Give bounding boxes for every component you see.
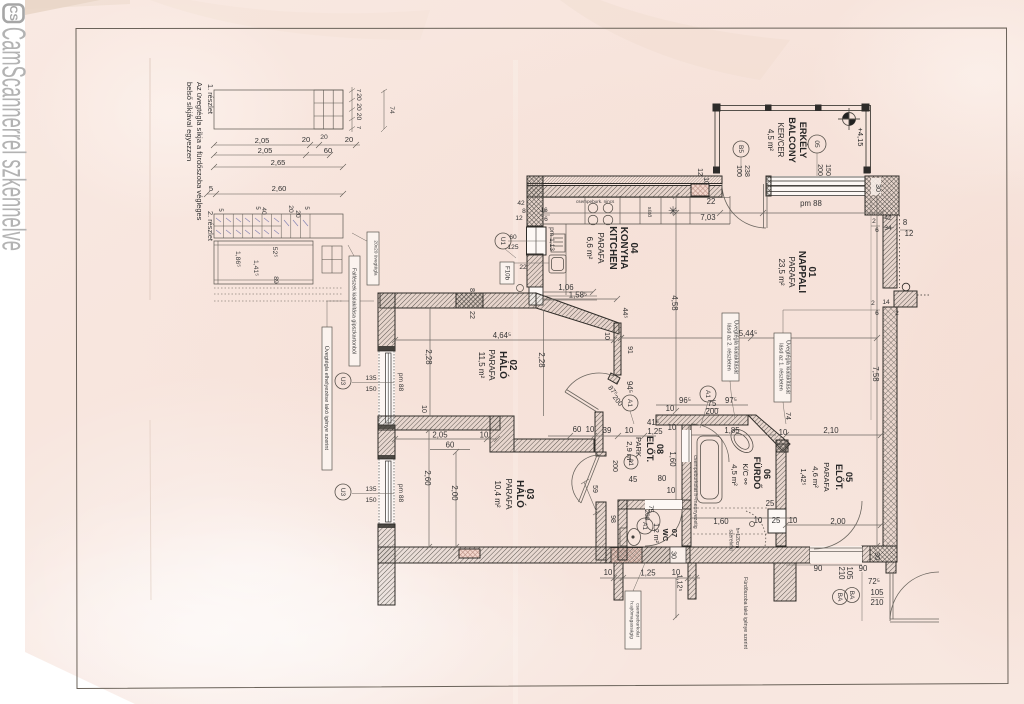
svg-text:200: 200 [816, 164, 823, 176]
svg-text:90: 90 [859, 564, 868, 573]
svg-text:90: 90 [814, 564, 823, 573]
svg-text:8: 8 [522, 208, 526, 215]
svg-text:lásd az 2. részleten: lásd az 2. részleten [726, 323, 732, 370]
svg-text:60: 60 [324, 146, 332, 155]
svg-text:2: 2 [872, 218, 876, 225]
svg-text:lásd az 1. részleten: lásd az 1. részleten [778, 343, 784, 390]
svg-text:12: 12 [696, 168, 703, 176]
svg-text:1,85: 1,85 [724, 426, 740, 435]
svg-text:80: 80 [658, 474, 667, 483]
svg-text:ELŐT.: ELŐT. [645, 436, 656, 462]
svg-text:PARAFA: PARAFA [487, 350, 496, 382]
svg-text:10: 10 [625, 426, 634, 435]
svg-text:✳: ✳ [668, 204, 678, 218]
svg-text:10: 10 [668, 423, 677, 432]
svg-text:7: 7 [355, 89, 361, 92]
svg-text:210: 210 [870, 598, 884, 607]
svg-text:150: 150 [824, 164, 831, 176]
svg-text:U3: U3 [339, 488, 346, 497]
svg-text:KITCHEN: KITCHEN [607, 226, 618, 270]
svg-text:PARAFA: PARAFA [504, 479, 513, 511]
svg-text:belső síkjával egyezzen: belső síkjával egyezzen [185, 82, 194, 161]
svg-text:05: 05 [813, 140, 820, 148]
svg-text:U3: U3 [339, 377, 346, 386]
svg-text:Fürdőszoba lakó igénye szerint: Fürdőszoba lakó igénye szerint [742, 577, 748, 649]
svg-text:pm 88: pm 88 [397, 373, 404, 392]
svg-text:6: 6 [875, 227, 879, 234]
svg-text:10: 10 [667, 486, 676, 495]
svg-text:20: 20 [287, 205, 294, 213]
svg-text:20: 20 [320, 134, 328, 141]
svg-text:22: 22 [519, 264, 527, 271]
svg-text:97⁵: 97⁵ [725, 396, 737, 405]
svg-text:HÁLÓ: HÁLÓ [514, 480, 526, 508]
svg-text:F10b: F10b [504, 266, 511, 281]
svg-text:6: 6 [875, 310, 879, 317]
svg-text:7,58: 7,58 [871, 366, 880, 381]
svg-text:2,65: 2,65 [271, 158, 286, 167]
svg-text:BA: BA [836, 593, 843, 602]
svg-text:30: 30 [873, 552, 880, 560]
svg-text:2,05: 2,05 [255, 136, 270, 145]
svg-text:2,60: 2,60 [423, 470, 432, 486]
svg-text:20: 20 [355, 93, 362, 101]
svg-text:A1: A1 [626, 399, 633, 407]
svg-text:PARAFA: PARAFA [787, 257, 796, 289]
svg-text:h:ajtómagasságig: h:ajtómagasságig [629, 601, 635, 639]
svg-text:Falfészek kialakítása gipszkar: Falfészek kialakítása gipszkartonból [351, 268, 357, 354]
svg-text:2: 2 [895, 310, 899, 317]
svg-text:10: 10 [702, 177, 709, 185]
svg-text:KER/CER: KER/CER [776, 123, 785, 158]
svg-text:42: 42 [884, 215, 892, 222]
svg-text:135: 135 [365, 486, 376, 493]
svg-text:10: 10 [666, 404, 675, 413]
svg-text:1,2 m²: 1,2 m² [652, 523, 659, 544]
svg-text:210: 210 [837, 566, 846, 580]
svg-text:Üvegtégla elhelyezése lakó igé: Üvegtégla elhelyezése lakó igénye szerin… [323, 346, 330, 451]
svg-text:szerelvfal: szerelvfal [728, 529, 734, 550]
svg-text:KONYHA: KONYHA [618, 227, 629, 269]
svg-text:12: 12 [905, 229, 914, 238]
svg-text:Üvegtégla kialakítását: Üvegtégla kialakítását [733, 320, 740, 374]
svg-text:60: 60 [446, 441, 455, 450]
svg-text:60: 60 [573, 425, 582, 434]
svg-text:20: 20 [345, 135, 353, 144]
svg-text:98: 98 [609, 515, 616, 523]
svg-text:PARAFA: PARAFA [822, 462, 831, 492]
svg-text:105: 105 [870, 588, 884, 597]
svg-text:4,5 m²: 4,5 m² [766, 129, 775, 151]
svg-text:A1: A1 [641, 522, 648, 530]
svg-text:30: 30 [670, 551, 677, 559]
svg-text:csempeburkolat h=mennyezetig: csempeburkolat h=mennyezetig [692, 455, 698, 529]
svg-text:2. részlet: 2. részlet [206, 211, 215, 241]
svg-text:5: 5 [209, 184, 213, 193]
svg-text:41⁵: 41⁵ [647, 418, 659, 427]
svg-text:135: 135 [365, 375, 376, 382]
svg-text:FÜRDŐ: FÜRDŐ [752, 457, 763, 490]
svg-text:52⁵: 52⁵ [271, 247, 278, 258]
svg-text:30: 30 [874, 184, 881, 192]
svg-text:1,12⁵: 1,12⁵ [676, 575, 685, 592]
svg-text:06: 06 [762, 469, 772, 479]
svg-text:7: 7 [355, 126, 361, 129]
svg-text:2,28: 2,28 [424, 349, 433, 364]
svg-text:Üvegtégla kialakítását: Üvegtégla kialakítását [785, 340, 792, 394]
svg-text:2,28: 2,28 [537, 352, 546, 367]
svg-text:91: 91 [626, 346, 633, 354]
svg-text:B5: B5 [737, 145, 744, 153]
svg-text:pm 88: pm 88 [397, 484, 404, 503]
svg-text:59: 59 [591, 485, 598, 493]
svg-text:05: 05 [844, 472, 854, 482]
svg-text:A1: A1 [704, 390, 711, 398]
svg-text:7,03: 7,03 [700, 213, 715, 222]
svg-text:25: 25 [772, 516, 781, 525]
svg-text:2,05: 2,05 [258, 146, 273, 155]
svg-text:14: 14 [882, 299, 890, 306]
svg-text:1,25: 1,25 [640, 569, 656, 578]
svg-text:CamScannerrel szkennelve: CamScannerrel szkennelve [0, 27, 33, 251]
svg-text:10,4 m²: 10,4 m² [493, 480, 502, 507]
svg-text:44⁵: 44⁵ [621, 308, 628, 319]
svg-text:1,86⁵: 1,86⁵ [234, 251, 241, 267]
svg-text:U1: U1 [499, 237, 506, 246]
svg-text:pm 1,13: pm 1,13 [548, 227, 555, 251]
svg-text:csempeburkolat: csempeburkolat [635, 603, 641, 638]
svg-text:6,6 m²: 6,6 m² [585, 237, 594, 260]
svg-text:40: 40 [260, 207, 267, 215]
svg-text:89: 89 [272, 276, 279, 284]
svg-text:72⁵: 72⁵ [868, 577, 880, 586]
svg-text:2,00: 2,00 [830, 517, 846, 526]
svg-text:10: 10 [420, 405, 429, 413]
svg-text:BALCONY: BALCONY [787, 117, 797, 162]
svg-text:1,58⁵: 1,58⁵ [569, 291, 587, 300]
svg-text:200: 200 [643, 510, 650, 521]
svg-text:20: 20 [355, 113, 362, 121]
svg-text:NAPPALI: NAPPALI [796, 251, 807, 294]
svg-text:1,41⁵: 1,41⁵ [252, 260, 259, 276]
svg-text:ELŐT.: ELŐT. [834, 464, 845, 490]
svg-text:4,5 m²: 4,5 m² [730, 464, 739, 486]
svg-text:6: 6 [544, 216, 548, 223]
svg-text:BA: BA [848, 591, 855, 600]
svg-text:94⁵: 94⁵ [625, 381, 634, 393]
svg-text:200: 200 [611, 460, 618, 472]
svg-text:4,58: 4,58 [670, 295, 679, 310]
svg-text:125: 125 [507, 244, 518, 251]
svg-text:+4,15: +4,15 [856, 128, 865, 147]
svg-text:K/C ⚯: K/C ⚯ [741, 463, 750, 485]
svg-text:200: 200 [705, 407, 719, 416]
svg-text:2,9 m²: 2,9 m² [625, 441, 634, 463]
svg-text:238: 238 [743, 165, 750, 177]
svg-text:23,5 m²: 23,5 m² [777, 258, 786, 285]
svg-text:10: 10 [586, 425, 595, 434]
svg-text:HÁLÓ: HÁLÓ [497, 351, 509, 379]
svg-text:2,10: 2,10 [823, 426, 839, 435]
svg-text:12: 12 [515, 215, 523, 222]
svg-text:20x20 üvegtégla: 20x20 üvegtégla [373, 240, 379, 276]
svg-text:150: 150 [365, 386, 376, 393]
svg-text:h=120cm: h=120cm [734, 528, 740, 549]
svg-text:34: 34 [884, 225, 892, 232]
svg-text:1,60: 1,60 [713, 517, 729, 526]
svg-text:39: 39 [603, 426, 612, 435]
svg-text:10: 10 [754, 516, 763, 525]
svg-text:2,00: 2,00 [450, 485, 459, 501]
svg-text:10: 10 [604, 568, 613, 577]
svg-text:11,5 m²: 11,5 m² [477, 352, 486, 379]
svg-text:1,60: 1,60 [668, 451, 677, 467]
svg-text:pm 88: pm 88 [800, 199, 822, 208]
svg-text:4,64⁵: 4,64⁵ [493, 331, 511, 340]
svg-text:74: 74 [388, 106, 395, 114]
svg-text:sütő: sütő [646, 207, 652, 217]
svg-text:WC: WC [661, 529, 670, 542]
svg-text:4,6 m²: 4,6 m² [811, 466, 820, 488]
svg-text:csempeburk. nincs: csempeburk. nincs [576, 199, 615, 204]
svg-text:22: 22 [468, 311, 477, 319]
svg-text:20: 20 [294, 210, 301, 218]
svg-text:10: 10 [480, 431, 489, 440]
svg-text:PARAFA: PARAFA [596, 233, 605, 265]
svg-text:96⁵: 96⁵ [679, 396, 691, 405]
svg-text:10: 10 [603, 332, 610, 340]
svg-text:60: 60 [509, 234, 517, 241]
svg-text:08: 08 [655, 444, 665, 454]
svg-text:10: 10 [779, 428, 788, 437]
svg-text:8: 8 [903, 218, 907, 227]
svg-text:8: 8 [468, 288, 477, 292]
svg-text:1. részlet: 1. részlet [206, 84, 215, 114]
svg-text:Az üvegtégla síkja a fürdőszob: Az üvegtégla síkja a fürdőszoba végleges [195, 82, 204, 221]
svg-text:20: 20 [355, 103, 362, 111]
svg-text:5,44⁵: 5,44⁵ [739, 329, 757, 338]
svg-text:2: 2 [871, 300, 875, 307]
svg-text:1,42⁵: 1,42⁵ [799, 469, 808, 486]
svg-text:100: 100 [735, 165, 742, 177]
svg-text:74: 74 [784, 412, 791, 420]
svg-text:150: 150 [365, 497, 376, 504]
svg-text:16: 16 [540, 207, 548, 214]
svg-text:42: 42 [517, 200, 525, 207]
svg-text:ERKÉLY: ERKÉLY [798, 122, 809, 158]
svg-text:2,05: 2,05 [432, 431, 448, 440]
svg-text:22: 22 [707, 197, 716, 206]
svg-text:2,60: 2,60 [272, 184, 287, 193]
svg-text:PARK: PARK [634, 437, 643, 457]
svg-text:1,25: 1,25 [647, 427, 663, 436]
svg-text:07: 07 [670, 529, 679, 537]
svg-text:20: 20 [302, 135, 310, 144]
svg-text:25: 25 [766, 499, 775, 508]
svg-text:CS: CS [7, 6, 19, 21]
svg-text:45: 45 [629, 475, 638, 484]
svg-text:10: 10 [789, 516, 798, 525]
